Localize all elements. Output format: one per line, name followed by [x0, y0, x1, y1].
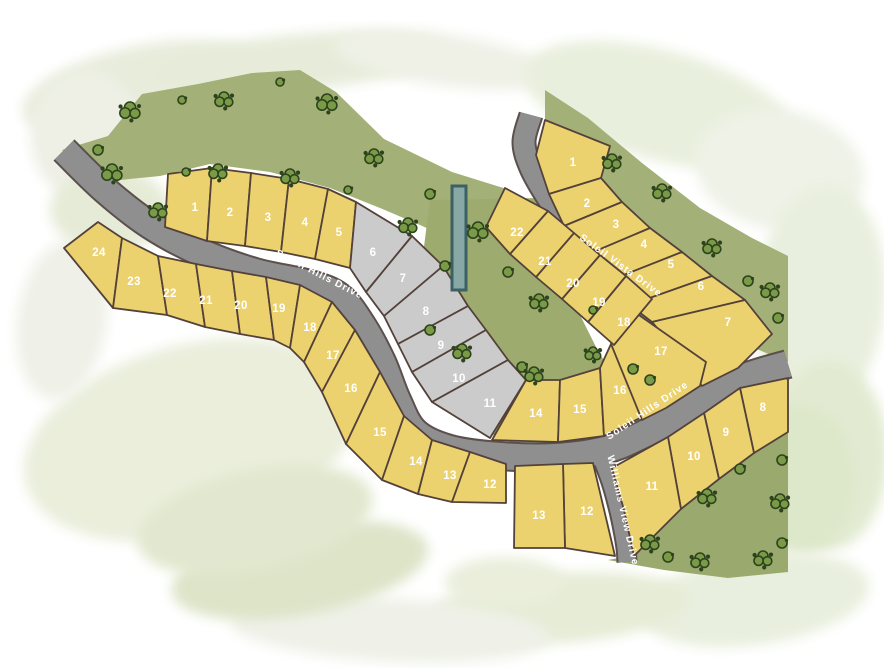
lot-number: 20	[566, 278, 579, 290]
tree-icon	[735, 464, 746, 474]
tree-icon	[178, 96, 187, 104]
marker-layer	[452, 186, 466, 290]
watercolor-wash	[445, 557, 565, 607]
lot-number: 13	[443, 470, 456, 482]
lot-number: 14	[529, 408, 543, 420]
subdivision-plat-map: 1234567891011242322212019181716151413121…	[0, 0, 884, 668]
lot-number: 7	[400, 273, 407, 285]
tree-icon	[503, 267, 514, 277]
lot-number: 2	[584, 198, 591, 210]
tree-icon	[663, 552, 674, 562]
lot-number: 11	[646, 481, 659, 493]
tree-icon	[344, 186, 353, 194]
lot-number: 16	[344, 383, 357, 395]
lot-number: 4	[641, 239, 648, 251]
lot-number: 22	[163, 288, 176, 300]
lot-number: 6	[698, 281, 705, 293]
lot-number: 12	[580, 506, 593, 518]
tree-icon	[93, 145, 104, 155]
lot-number: 14	[409, 456, 423, 468]
lot-number: 1	[192, 202, 199, 214]
tree-icon	[425, 325, 436, 335]
lot-east-13[interactable]: 13	[514, 464, 565, 548]
lot-number: 21	[538, 256, 552, 268]
lot-number: 9	[723, 427, 730, 439]
lot-number: 11	[484, 398, 497, 410]
lot-number: 3	[613, 219, 620, 231]
tree-icon	[645, 375, 656, 385]
lot-polygon[interactable]	[165, 168, 212, 241]
lot-number: 17	[326, 350, 339, 362]
lot-number: 7	[725, 317, 732, 329]
lot-polygon[interactable]	[514, 464, 565, 548]
lot-number: 9	[438, 340, 445, 352]
tree-icon	[276, 78, 285, 86]
lot-number: 10	[452, 373, 465, 385]
lot-number: 1	[570, 157, 577, 169]
tree-icon	[589, 306, 598, 314]
tree-icon	[425, 189, 436, 199]
tree-icon	[628, 364, 639, 374]
lot-number: 17	[654, 346, 667, 358]
tower-marker-icon	[452, 186, 466, 290]
plat-map-page: 1234567891011242322212019181716151413121…	[0, 0, 884, 668]
lot-number: 6	[370, 247, 377, 259]
lot-number: 19	[272, 303, 285, 315]
lot-west-23[interactable]: 23	[113, 238, 167, 315]
lot-number: 8	[760, 402, 767, 414]
lot-number: 8	[423, 306, 430, 318]
lot-central-15[interactable]: 15	[558, 368, 604, 442]
lot-northwest-2[interactable]: 2	[207, 168, 251, 246]
lot-number: 24	[92, 247, 106, 259]
lot-number: 18	[617, 317, 631, 329]
lot-number: 15	[373, 427, 387, 439]
lot-number: 20	[234, 300, 247, 312]
lot-northwest-1[interactable]: 1	[165, 168, 212, 241]
lot-number: 3	[265, 212, 272, 224]
lot-number: 10	[687, 451, 700, 463]
lot-number: 23	[127, 276, 140, 288]
tree-icon	[440, 261, 451, 271]
tree-icon	[777, 455, 788, 465]
lot-number: 12	[483, 479, 496, 491]
tree-icon	[743, 276, 754, 286]
lot-number: 16	[613, 385, 626, 397]
lot-number: 15	[573, 404, 587, 416]
lot-number: 5	[336, 227, 343, 239]
lot-number: 13	[532, 510, 545, 522]
lot-number: 4	[302, 217, 309, 229]
tree-icon	[777, 538, 788, 548]
lot-number: 5	[668, 259, 675, 271]
tree-icon	[773, 313, 784, 323]
lot-number: 21	[199, 295, 213, 307]
lot-number: 22	[510, 227, 523, 239]
tree-icon	[182, 168, 191, 176]
lot-number: 2	[227, 207, 234, 219]
lot-number: 18	[303, 322, 317, 334]
